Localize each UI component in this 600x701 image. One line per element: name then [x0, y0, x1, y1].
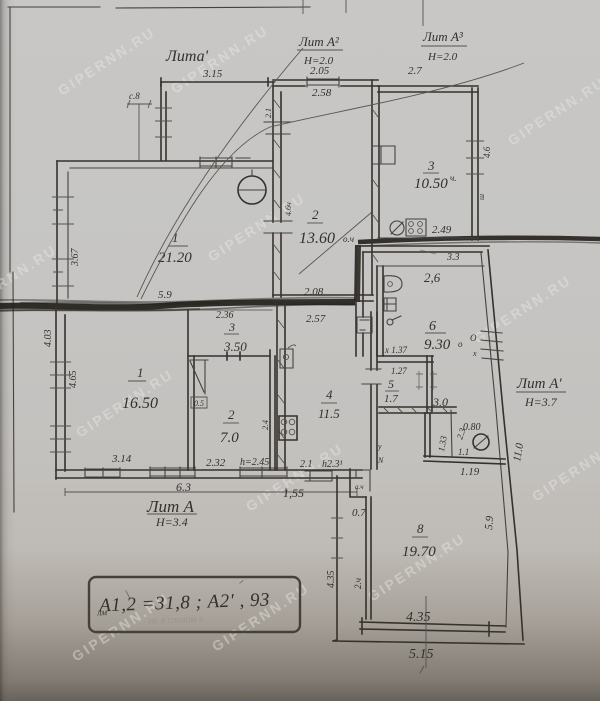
svg-text:5: 5 [388, 377, 394, 391]
svg-text:GIPERNN.RU: GIPERNN.RU [529, 430, 600, 505]
svg-text:2.ч: 2.ч [353, 578, 363, 589]
svg-text:11.5: 11.5 [318, 406, 340, 421]
svg-text:RNN.RU: RNN.RU [0, 241, 60, 292]
svg-text:1.7: 1.7 [384, 393, 398, 405]
svg-text:5.9: 5.9 [483, 515, 496, 530]
svg-text:2.1: 2.1 [300, 459, 313, 470]
svg-text:N: N [377, 456, 384, 465]
svg-text:Н=3.7: Н=3.7 [524, 395, 558, 409]
svg-text:2: 2 [312, 207, 319, 222]
svg-text:3.67: 3.67 [70, 248, 81, 268]
svg-text:х 1.37: х 1.37 [384, 345, 407, 355]
svg-text:7.0: 7.0 [220, 430, 239, 446]
svg-text:5.15: 5.15 [409, 647, 434, 662]
svg-text:GIPERNN.RU: GIPERNN.RU [243, 440, 346, 515]
svg-text:4.35: 4.35 [406, 610, 431, 625]
svg-text:GIPERNN.RU: GIPERNN.RU [365, 530, 468, 605]
svg-text:ш: ш [477, 194, 486, 200]
svg-text:х: х [472, 349, 477, 358]
svg-text:не в спелом з: не в спелом з [149, 614, 204, 627]
svg-text:21.20: 21.20 [158, 250, 192, 266]
svg-text:Лит А²: Лит А² [298, 34, 340, 49]
svg-text:h2.3¹: h2.3¹ [322, 459, 343, 470]
svg-text:А1,2 =31,8 ; А2' , 93: А1,2 =31,8 ; А2' , 93 [97, 589, 271, 616]
svg-text:Н=2.0: Н=2.0 [303, 55, 334, 67]
svg-text:3: 3 [427, 158, 435, 173]
svg-text:11.0: 11.0 [511, 442, 526, 463]
svg-text:2.49: 2.49 [432, 224, 452, 236]
svg-text:3.15: 3.15 [202, 68, 223, 80]
svg-text:13.60: 13.60 [299, 230, 335, 247]
svg-text:2.36: 2.36 [216, 310, 234, 321]
svg-text:0.80: 0.80 [463, 422, 481, 433]
svg-text:1.19: 1.19 [460, 466, 480, 478]
svg-text:2: 2 [228, 407, 235, 422]
svg-text:1.27: 1.27 [391, 366, 407, 376]
svg-text:3.14: 3.14 [111, 453, 132, 465]
svg-text:4: 4 [326, 387, 333, 402]
svg-text:а.ч: а.ч [355, 483, 364, 491]
svg-text:6.3: 6.3 [176, 480, 191, 494]
svg-text:2.58: 2.58 [312, 87, 332, 99]
svg-text:2.7: 2.7 [408, 65, 422, 77]
svg-text:GIPERNN.RU: GIPERNN.RU [205, 190, 308, 265]
svg-text:8: 8 [417, 521, 424, 536]
svg-text:Лита': Лита' [165, 48, 209, 65]
svg-text:3.0: 3.0 [432, 395, 448, 409]
svg-text:4.65: 4.65 [68, 371, 79, 389]
svg-text:h=2.45: h=2.45 [240, 457, 269, 468]
svg-text:GIPERNN.RU: GIPERNN.RU [505, 74, 600, 149]
svg-text:у: у [377, 442, 382, 451]
svg-text:0.5: 0.5 [194, 399, 204, 408]
svg-text:ч.: ч. [450, 173, 457, 183]
svg-text:16.50: 16.50 [122, 395, 158, 412]
svg-text:1.1: 1.1 [458, 447, 469, 457]
svg-text:Н=3.4: Н=3.4 [155, 515, 188, 529]
svg-text:Лит А³: Лит А³ [422, 29, 464, 44]
svg-text:1: 1 [137, 365, 144, 380]
svg-text:О: О [470, 333, 477, 343]
svg-text:2.1: 2.1 [264, 108, 273, 118]
svg-text:2.08: 2.08 [304, 286, 324, 298]
svg-text:2.4: 2.4 [261, 420, 270, 430]
svg-text:Лит А': Лит А' [516, 376, 562, 392]
svg-text:4.6ч: 4.6ч [284, 202, 293, 216]
svg-text:3: 3 [228, 320, 235, 334]
svg-text:4.35: 4.35 [326, 571, 337, 589]
svg-text:3.50: 3.50 [223, 339, 247, 354]
svg-text:GIPERNN.RU: GIPERNN.RU [55, 24, 158, 99]
svg-text:4.03: 4.03 [43, 330, 54, 348]
svg-text:3.3: 3.3 [446, 252, 460, 263]
svg-text:2.57: 2.57 [306, 313, 326, 325]
svg-text:Н=2.0: Н=2.0 [427, 51, 458, 63]
svg-text:5.9: 5.9 [158, 289, 172, 301]
svg-text:2.32: 2.32 [206, 457, 226, 469]
svg-text:6: 6 [429, 319, 436, 334]
svg-text:2,6: 2,6 [424, 270, 441, 285]
svg-text:19.70: 19.70 [402, 544, 436, 560]
svg-text:0.7: 0.7 [352, 507, 366, 519]
svg-text:1.33: 1.33 [436, 435, 449, 453]
svg-text:10.50: 10.50 [414, 176, 448, 192]
svg-text:с.8: с.8 [129, 91, 140, 101]
svg-text:1,55: 1,55 [283, 486, 304, 500]
svg-text:4.6: 4.6 [482, 146, 492, 158]
svg-text:лм: лм [96, 607, 107, 617]
svg-text:Лит А: Лит А [146, 497, 195, 516]
svg-text:9.30: 9.30 [424, 337, 451, 353]
svg-text:о: о [458, 339, 463, 349]
